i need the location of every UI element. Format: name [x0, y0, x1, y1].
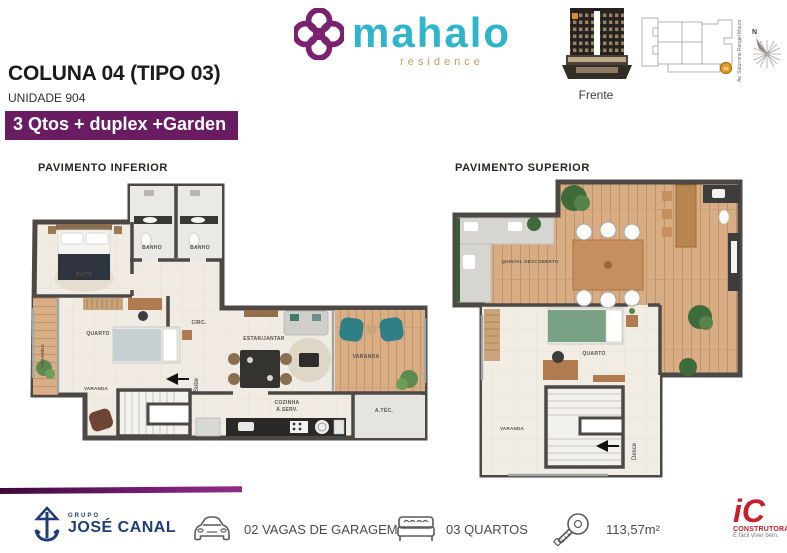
anchor-icon — [33, 506, 61, 544]
atec-floor — [353, 395, 425, 438]
garagem-label: 02 VAGAS DE GARAGEM — [244, 522, 398, 537]
brand-wordmark-wrap: mahalo residence — [352, 12, 532, 68]
building-render: Frente — [560, 5, 632, 102]
room-label-quarto-sup: QUARTO — [582, 351, 605, 357]
street-label: Av. Saturnino Rangel Mauro — [737, 19, 743, 82]
ic-mark: iC — [733, 497, 783, 526]
room-label-atec: A.TÉC. — [375, 406, 393, 414]
feature-quartos: 03 QUARTOS — [396, 514, 528, 544]
tape-measure-icon — [552, 510, 596, 548]
plan-superior-title: PAVIMENTO SUPERIOR — [455, 162, 590, 174]
site-plan-outline — [642, 18, 732, 72]
area-label: 113,57m² — [606, 522, 660, 537]
plan-inferior-title: PAVIMENTO INFERIOR — [38, 162, 168, 174]
feature-garagem: 02 VAGAS DE GARAGEM — [190, 514, 398, 544]
compass-north-label: N — [752, 29, 757, 36]
brand-logo — [294, 8, 344, 65]
plan-superior: Desce QUINTAL DESCOBERTO QUARTO VARANDA — [448, 175, 748, 485]
ic-construtora-logo: iC CONSTRUTORA É fácil viver bem. — [733, 497, 783, 539]
varanda-suite-deck — [33, 296, 58, 395]
features-badge: 3 Qtos + duplex +Garden — [5, 111, 238, 140]
plan-inferior: Sobe SUITE BANHO BANHO VARANDA QUARTO CI… — [28, 178, 433, 463]
kitchen-counter — [196, 418, 346, 436]
room-label-quarto: QUARTO — [86, 331, 109, 337]
room-label-varanda-quarto: VARANDA — [84, 386, 109, 391]
site-plan: 04 Av. Saturnino Rangel Mauro — [638, 12, 750, 84]
bed-icon — [396, 514, 436, 544]
brand-wordmark: mahalo — [352, 12, 532, 54]
room-label-cozinha: COZINHA — [275, 400, 300, 406]
ic-tagline: É fácil viver bem. — [733, 533, 783, 539]
room-label-quintal: QUINTAL DESCOBERTO — [501, 259, 558, 264]
desce-label: Desce — [632, 442, 638, 460]
room-label-varanda-suite: VARANDA — [40, 344, 45, 369]
room-label-banho1: BANHO — [142, 245, 162, 251]
unit-subtitle: UNIDADE 904 — [8, 91, 85, 105]
room-label-circ: CIRC. — [191, 320, 206, 326]
footer-stripe — [0, 486, 242, 494]
room-label-estar: ESTAR/JANTAR — [243, 336, 285, 342]
features-badge-wrap: 3 Qtos + duplex +Garden — [5, 111, 238, 140]
room-label-aserv: Á.SERV. — [276, 406, 298, 413]
flower-icon — [294, 8, 344, 60]
jose-canal-name: JOSÉ CANAL — [68, 519, 176, 537]
unit-marker-label: 04 — [723, 66, 729, 71]
compass-icon: N — [748, 24, 786, 72]
car-icon — [190, 514, 234, 544]
page-title: COLUNA 04 (TIPO 03) — [8, 62, 220, 86]
stairs-superior — [546, 387, 623, 467]
flyer-page: COLUNA 04 (TIPO 03) UNIDADE 904 3 Qtos +… — [0, 0, 787, 553]
building-caption: Frente — [560, 88, 632, 102]
sobe-label: Sobe — [194, 377, 200, 392]
ic-construtora-label: CONSTRUTORA — [733, 526, 783, 533]
feature-area: 113,57m² — [552, 510, 660, 548]
stairs-inferior — [118, 390, 190, 436]
quartos-label: 03 QUARTOS — [446, 522, 528, 537]
jose-canal-logo: GRUPO JOSÉ CANAL — [33, 506, 176, 544]
room-label-suite: SUITE — [76, 272, 93, 278]
room-label-varanda-sup: VARANDA — [500, 426, 525, 431]
room-label-varanda-estar: VARANDA — [353, 354, 380, 360]
terrace-dining — [573, 222, 643, 308]
room-label-banho2: BANHO — [190, 245, 210, 251]
building-illustration — [560, 5, 632, 83]
brand-tagline: residence — [352, 56, 532, 68]
